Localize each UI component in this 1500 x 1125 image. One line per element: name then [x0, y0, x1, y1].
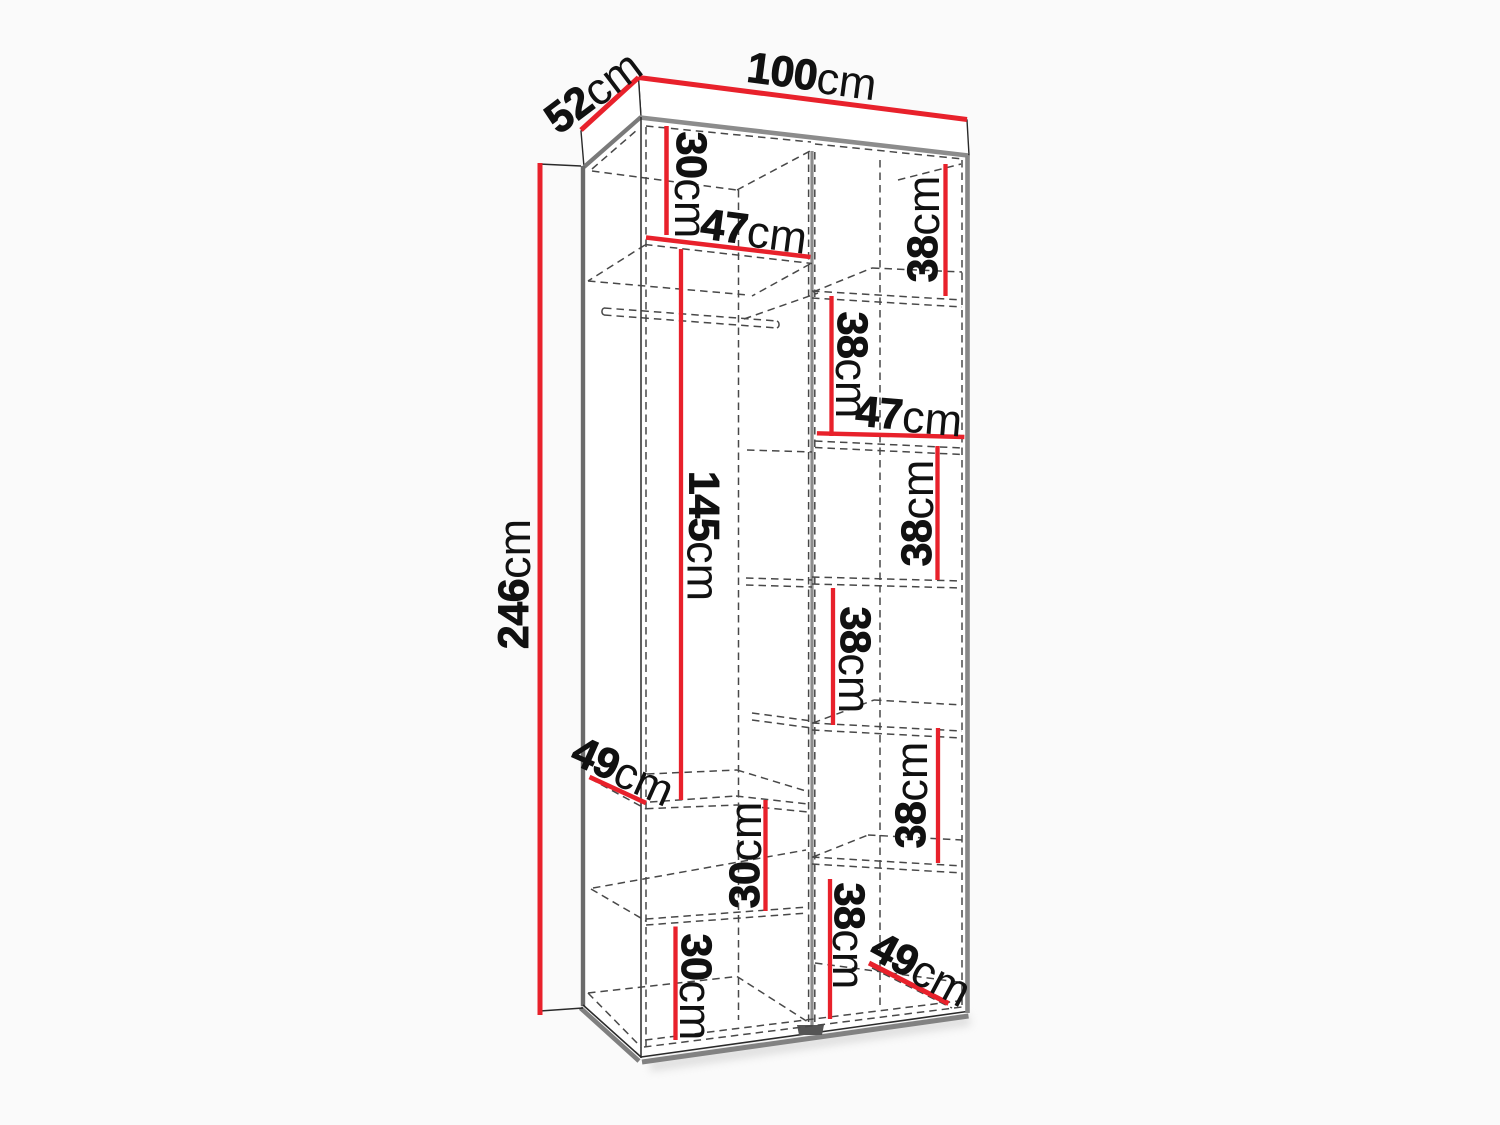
- svg-text:145cm: 145cm: [678, 471, 729, 601]
- svg-text:30cm: 30cm: [671, 934, 722, 1041]
- svg-text:38cm: 38cm: [824, 883, 875, 990]
- svg-text:246cm: 246cm: [489, 519, 540, 649]
- svg-text:38cm: 38cm: [892, 460, 943, 567]
- svg-text:38cm: 38cm: [886, 742, 937, 849]
- svg-text:30cm: 30cm: [720, 802, 771, 909]
- svg-text:38cm: 38cm: [830, 607, 881, 714]
- svg-text:38cm: 38cm: [898, 176, 949, 283]
